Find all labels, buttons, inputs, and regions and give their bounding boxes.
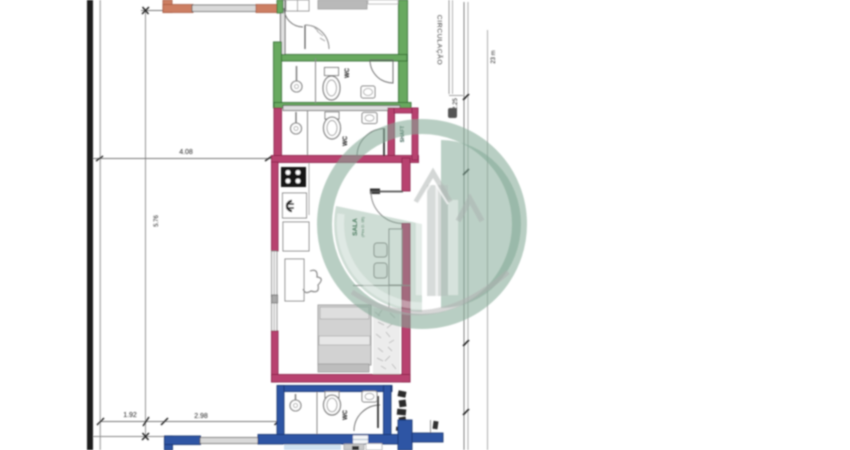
svg-text:4.08: 4.08 <box>179 149 193 156</box>
svg-text:CIRCULAÇÃO: CIRCULAÇÃO <box>436 15 445 66</box>
svg-text:23 m: 23 m <box>491 50 497 63</box>
svg-text:1.92: 1.92 <box>123 412 137 419</box>
svg-text:WC: WC <box>345 67 351 78</box>
svg-text:5.76: 5.76 <box>154 215 160 227</box>
svg-text:WC: WC <box>343 409 349 420</box>
svg-text:2.98: 2.98 <box>194 413 208 420</box>
svg-text:2.25: 2.25 <box>453 98 459 110</box>
svg-text:WC: WC <box>343 135 349 146</box>
